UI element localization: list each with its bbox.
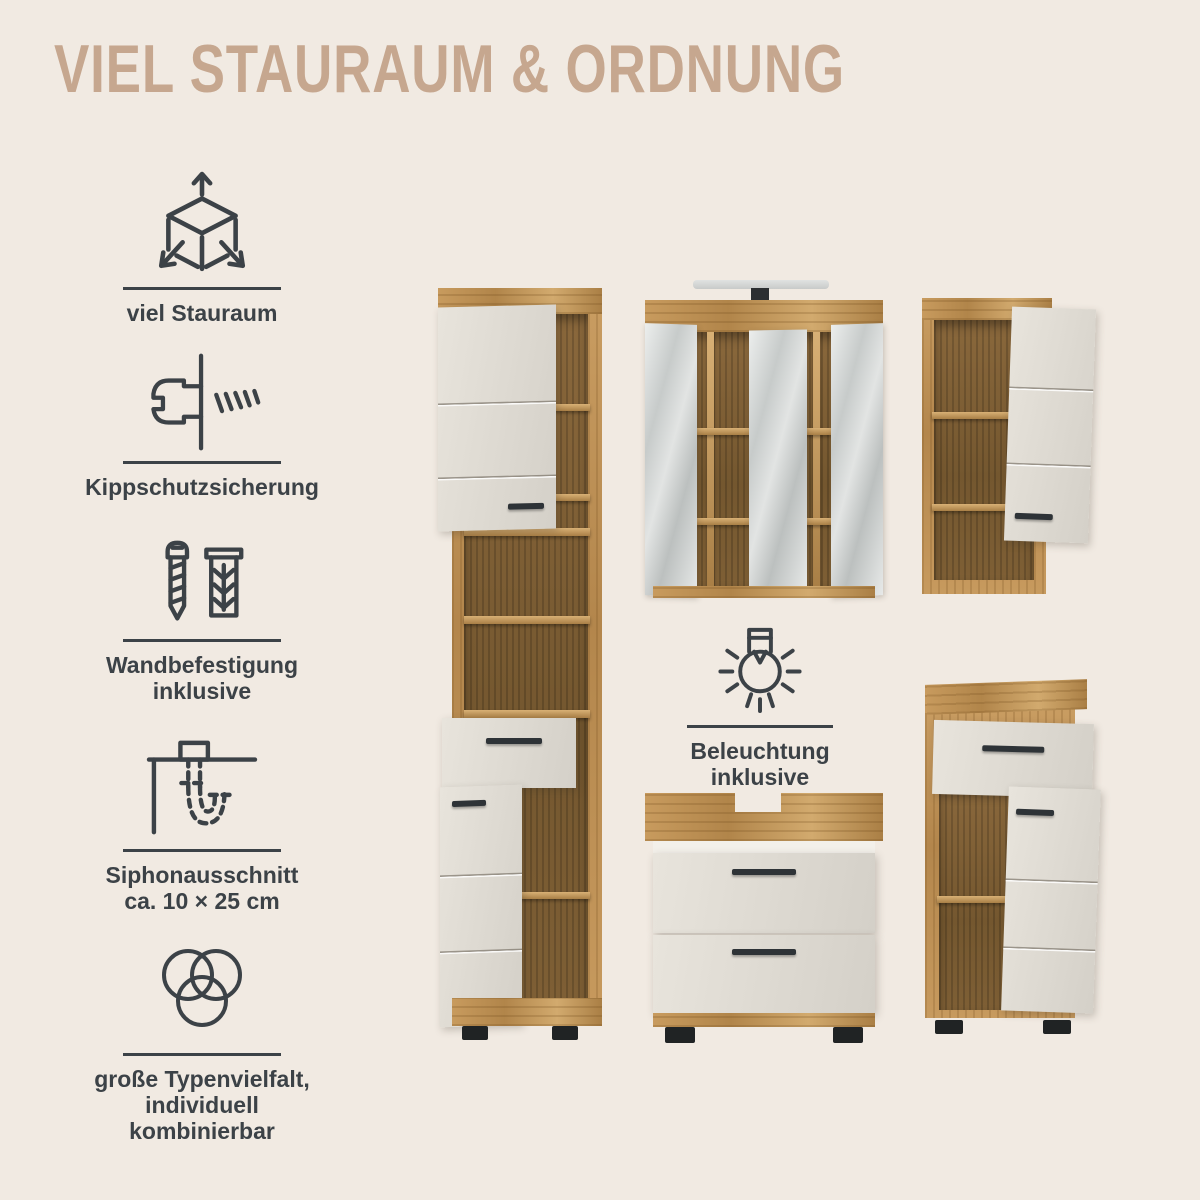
feature-typenvielfalt: große Typenvielfalt, individuell kombini… bbox=[82, 944, 322, 1144]
divider bbox=[123, 287, 281, 290]
shelf bbox=[464, 616, 590, 624]
feature-kippschutz: Kippschutzsicherung bbox=[82, 352, 322, 500]
feature-label: Siphonausschnitt ca. 10 × 25 cm bbox=[82, 862, 322, 914]
door-groove bbox=[1006, 878, 1098, 884]
feature-label: viel Stauraum bbox=[82, 300, 322, 326]
cabinet-foot bbox=[552, 1026, 578, 1040]
vanity-blende bbox=[653, 841, 875, 853]
door-groove bbox=[1009, 387, 1093, 393]
feature-label: Kippschutzsicherung bbox=[82, 474, 322, 500]
drawer-handle bbox=[486, 738, 542, 744]
cabinet-foot bbox=[665, 1027, 695, 1043]
feature-label-line: Beleuchtung bbox=[650, 738, 870, 764]
page-title: VIEL STAURAUM & ORDNUNG bbox=[54, 30, 845, 108]
shelf bbox=[464, 710, 590, 718]
drawer-handle bbox=[982, 745, 1044, 753]
door-groove bbox=[440, 873, 522, 879]
drawer-handle bbox=[732, 869, 796, 875]
feature-stauraum: viel Stauraum bbox=[82, 170, 322, 326]
feature-label-line: ca. 10 × 25 cm bbox=[82, 888, 322, 914]
feature-label-line: inklusive bbox=[650, 764, 870, 790]
cabinet-foot bbox=[833, 1027, 863, 1043]
open-door-panel bbox=[438, 304, 556, 531]
door-groove bbox=[1003, 946, 1095, 952]
cabinet-foot bbox=[1043, 1020, 1071, 1034]
feature-label-line: viel Stauraum bbox=[82, 300, 322, 326]
feature-wandbefestigung: Wandbefestigung inklusive bbox=[82, 538, 322, 704]
feature-label-line: individuell kombinierbar bbox=[82, 1092, 322, 1144]
feature-label: Beleuchtung inklusive bbox=[650, 738, 870, 790]
door-groove bbox=[1007, 463, 1091, 469]
divider bbox=[123, 461, 281, 464]
divider bbox=[123, 849, 281, 852]
door-handle bbox=[1015, 513, 1053, 520]
divider bbox=[687, 725, 833, 728]
cabinet-base-board bbox=[452, 998, 602, 1026]
feature-label-line: Wandbefestigung bbox=[82, 652, 322, 678]
drawer-handle bbox=[732, 949, 796, 955]
cabinet-bottom-board bbox=[653, 586, 875, 598]
cabinet-foot bbox=[935, 1020, 963, 1034]
mirror-door bbox=[749, 329, 807, 592]
open-door-panel bbox=[440, 785, 522, 1028]
venn-circles-icon bbox=[147, 944, 257, 1044]
mirror-door bbox=[831, 323, 883, 597]
vertical-divider bbox=[707, 332, 714, 586]
feature-label: große Typenvielfalt, individuell kombini… bbox=[82, 1066, 322, 1144]
door-handle bbox=[1016, 809, 1054, 816]
divider bbox=[123, 639, 281, 642]
door-groove bbox=[440, 949, 522, 955]
feature-label-line: große Typenvielfalt, bbox=[82, 1066, 322, 1092]
vertical-divider bbox=[813, 332, 820, 586]
wall-cabinet bbox=[922, 298, 1094, 598]
open-door-panel bbox=[1001, 786, 1101, 1013]
feature-label-line: Kippschutzsicherung bbox=[82, 474, 322, 500]
siphon-cutout-icon bbox=[143, 736, 261, 840]
feature-label: Wandbefestigung inklusive bbox=[82, 652, 322, 704]
washbasin-vanity bbox=[645, 793, 883, 1045]
anti-tip-fitting-icon bbox=[138, 352, 266, 452]
feature-beleuchtung: Beleuchtung inklusive bbox=[650, 622, 870, 790]
light-bulb-icon bbox=[705, 622, 815, 716]
cabinet-top-board bbox=[925, 679, 1087, 715]
cube-dimensions-icon bbox=[150, 170, 254, 278]
drawer-front bbox=[653, 853, 875, 933]
feature-label-line: Siphonausschnitt bbox=[82, 862, 322, 888]
door-handle bbox=[508, 503, 544, 510]
door-groove bbox=[438, 400, 556, 406]
mirror-door bbox=[645, 323, 697, 597]
vanity-base-board bbox=[653, 1013, 875, 1027]
door-groove bbox=[438, 474, 556, 480]
drawer-front bbox=[442, 718, 576, 788]
vanity-top-with-siphon-cutout bbox=[645, 793, 883, 841]
door-handle bbox=[452, 800, 486, 807]
feature-label-line: inklusive bbox=[82, 678, 322, 704]
mirror-cabinet-with-light bbox=[645, 280, 883, 602]
tall-cabinet bbox=[438, 288, 602, 1042]
divider bbox=[123, 1053, 281, 1056]
floor-cabinet bbox=[925, 678, 1100, 1036]
screw-and-dowel-icon bbox=[150, 538, 254, 630]
feature-siphon: Siphonausschnitt ca. 10 × 25 cm bbox=[82, 736, 322, 914]
drawer-front bbox=[653, 935, 875, 1013]
open-door-panel bbox=[1004, 307, 1096, 544]
cabinet-foot bbox=[462, 1026, 488, 1040]
